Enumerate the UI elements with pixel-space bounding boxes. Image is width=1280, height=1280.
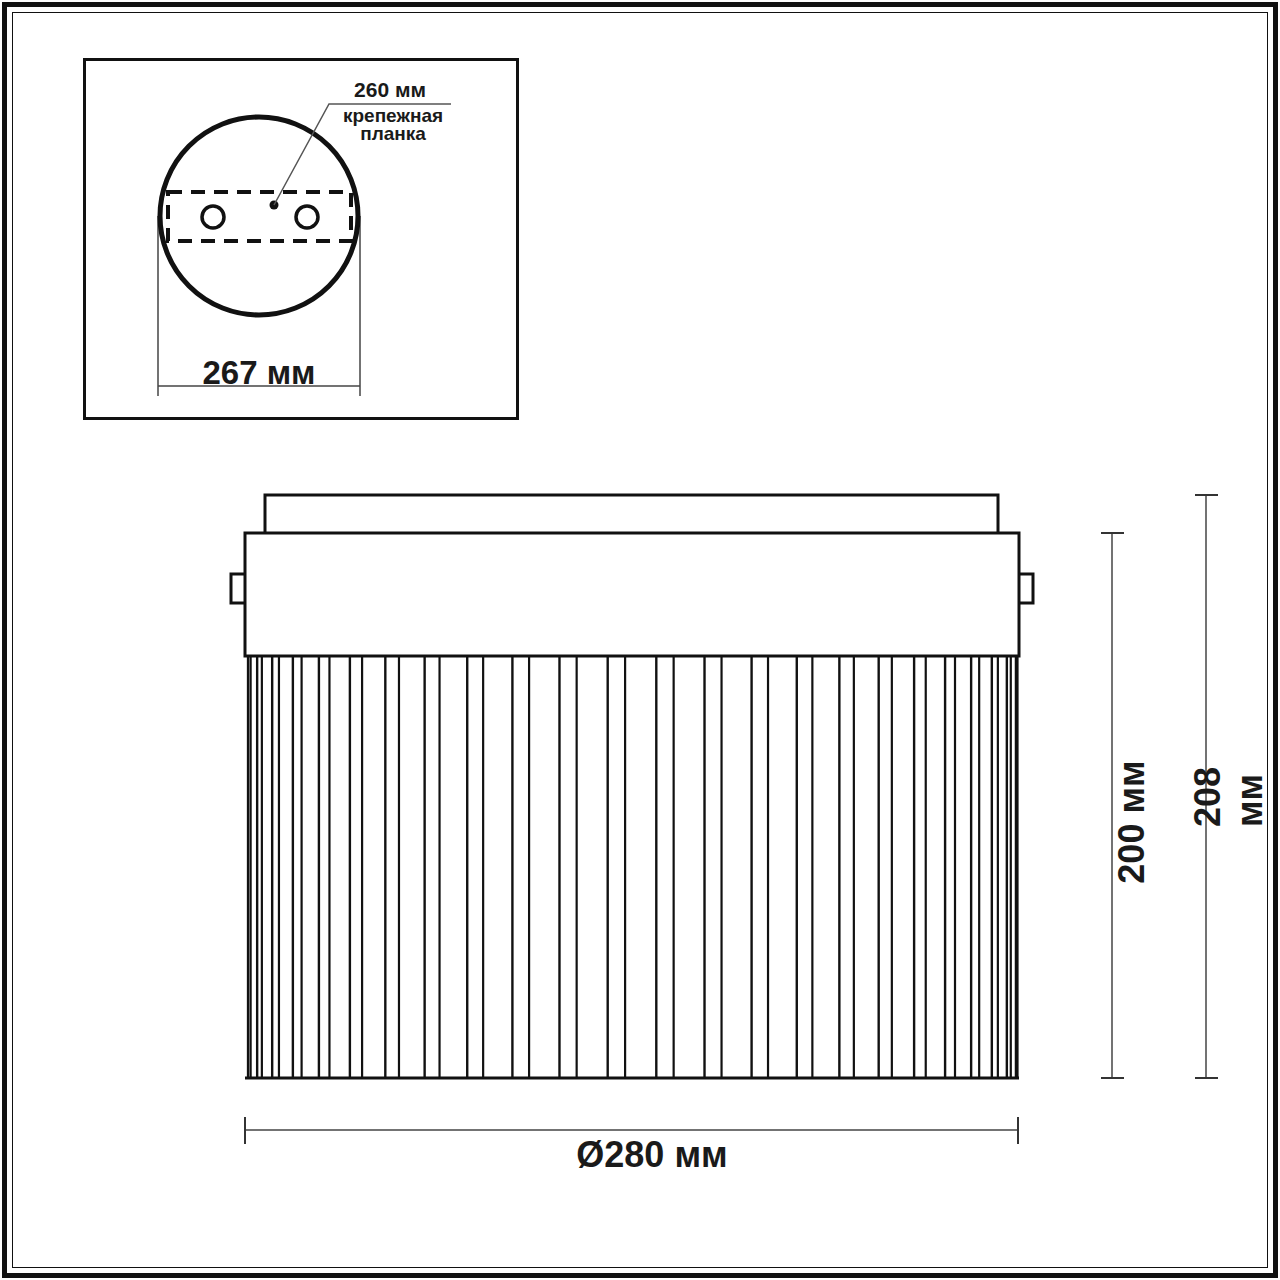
technical-drawing-page: 260 мм крепежная планка 267 мм Ø280 мм 2… xyxy=(0,0,1280,1280)
ribs-lines xyxy=(248,657,1017,1077)
dim-label-height-total: 208 мм xyxy=(1187,767,1271,827)
dim-label-height-body: 200 мм xyxy=(1111,760,1153,883)
canopy-rect xyxy=(265,495,998,534)
front-view-drawing xyxy=(0,0,1280,1280)
fixture-body-band xyxy=(245,533,1019,656)
dim-label-diameter: Ø280 мм xyxy=(576,1134,727,1176)
